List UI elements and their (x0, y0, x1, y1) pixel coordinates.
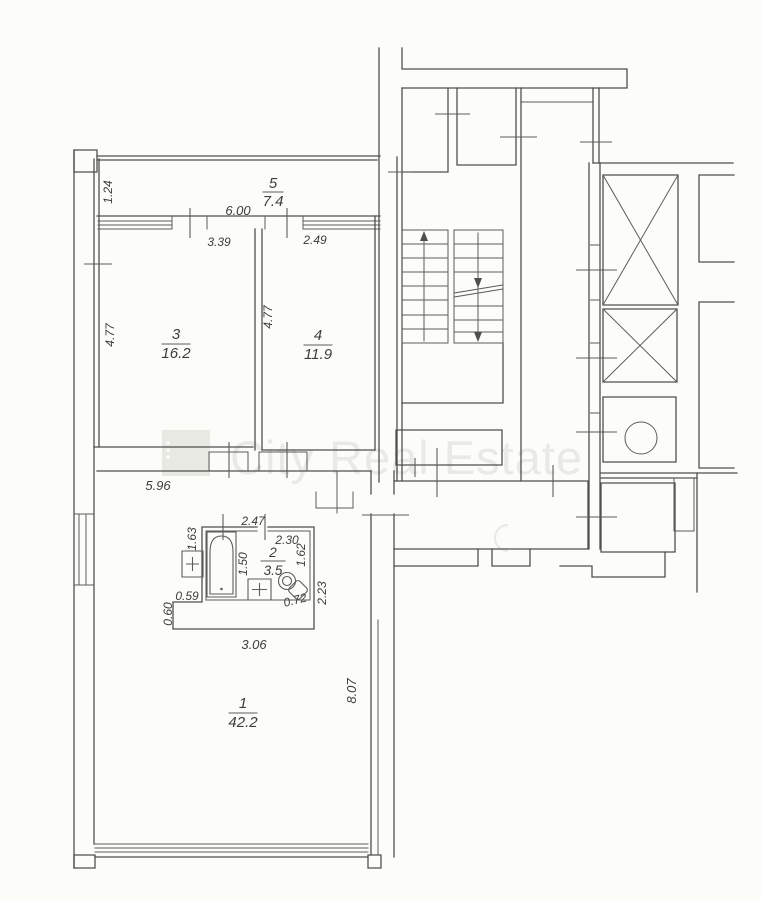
dimension-label: 2.23 (315, 581, 329, 606)
room-area: 42.2 (228, 714, 258, 731)
stairs-down-arrow-icon (474, 332, 482, 342)
watermark: City Real Estate (162, 430, 583, 484)
dimension-label: 4.77 (261, 304, 275, 329)
dimension-label: 2.47 (240, 514, 266, 528)
room-number: 5 (269, 175, 278, 192)
watermark-text: City Real Estate (230, 431, 583, 484)
dimension-label: 4.77 (103, 322, 117, 347)
floor-plan-svg: City Real Estate (0, 0, 761, 900)
dimension-label: 1.50 (236, 552, 250, 576)
dimension-label: 6.00 (225, 203, 251, 218)
bathtub-drain-icon (220, 588, 223, 591)
dimension-label: 3.06 (241, 637, 267, 652)
room-area: 7.4 (263, 193, 284, 210)
dimension-label: 1.63 (185, 527, 199, 551)
dimension-label: 0.60 (161, 602, 175, 626)
room-number: 2 (268, 545, 277, 560)
room-area: 16.2 (161, 345, 191, 362)
garbage-chute-room (603, 397, 676, 462)
stairs-up-arrow-icon (420, 231, 428, 241)
room-number: 4 (314, 327, 322, 344)
floor-plan-page: City Real Estate (0, 0, 761, 900)
dimension-label: 2.49 (302, 233, 327, 247)
dimension-label: 1.62 (294, 543, 308, 567)
dimension-label: 8.07 (344, 678, 359, 704)
room-number: 1 (239, 695, 247, 712)
dimension-label: 5.96 (145, 478, 171, 493)
dimension-label: 3.39 (207, 235, 231, 249)
room-number: 3 (172, 326, 181, 343)
room-area: 3.5 (264, 563, 283, 578)
garbage-chute-icon (625, 422, 657, 454)
dimension-label: 0.59 (175, 589, 199, 603)
scan-smudge (495, 525, 508, 551)
stairs-down-arrow-icon (474, 278, 482, 288)
room-area: 11.9 (304, 346, 333, 363)
staircase (402, 230, 503, 343)
elevator-shafts (603, 175, 678, 462)
watermark-logo (162, 430, 210, 476)
dimension-label: 0.72 (282, 590, 308, 609)
dimension-label: 1.24 (101, 180, 115, 204)
